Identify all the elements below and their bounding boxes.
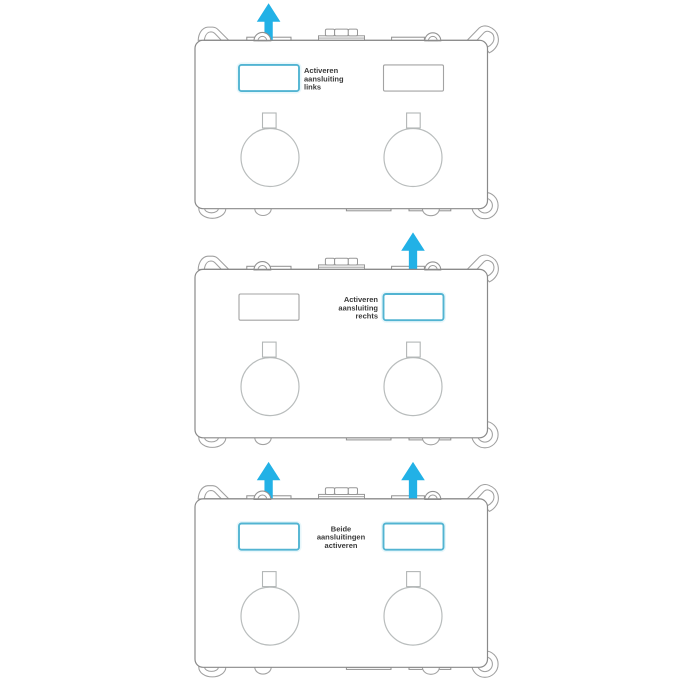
- svg-text:activeren: activeren: [325, 541, 358, 550]
- svg-text:rechts: rechts: [355, 312, 378, 321]
- svg-text:links: links: [304, 83, 321, 92]
